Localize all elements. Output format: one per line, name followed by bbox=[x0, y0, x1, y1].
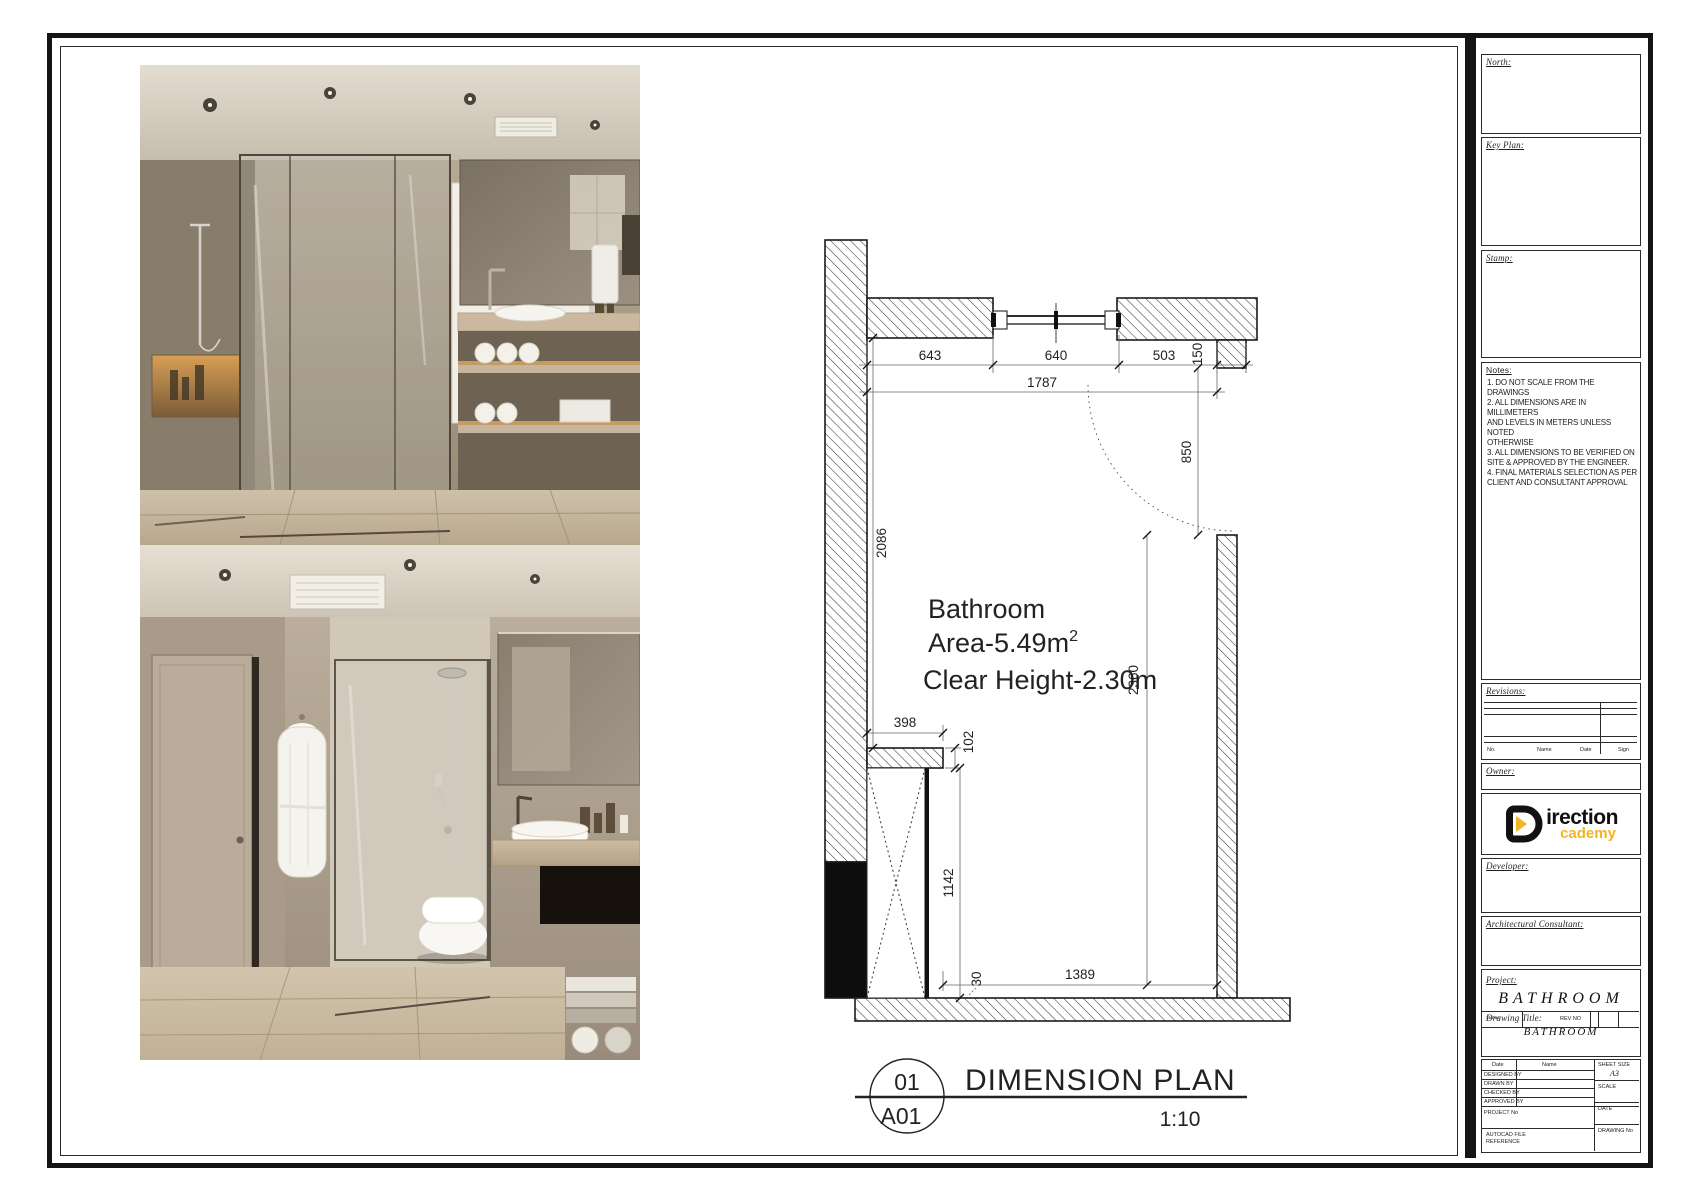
row-approved-by: APPROVED BY bbox=[1484, 1099, 1523, 1105]
shower-wall bbox=[140, 160, 255, 495]
photo-render-bottom bbox=[140, 545, 640, 1060]
titleblock-north: North: bbox=[1481, 54, 1641, 134]
notes-text: 1. DO NOT SCALE FROM THE DRAWINGS 2. ALL… bbox=[1482, 375, 1640, 488]
sheet-size-value: A3 bbox=[1610, 1069, 1619, 1078]
dim-150: 150 bbox=[1190, 343, 1205, 366]
note-line: AND LEVELS IN METERS UNLESS NOTED bbox=[1487, 418, 1638, 438]
keyplan-label: Key Plan: bbox=[1482, 138, 1640, 150]
photo1-ceiling bbox=[140, 65, 640, 160]
ceiling-vent-2 bbox=[290, 575, 385, 609]
dim-1787: 1787 bbox=[1027, 375, 1057, 390]
date-label: DATE bbox=[1598, 1106, 1612, 1112]
dimension-plan: 643 640 503 150 1787 850 2086 2360 398 1… bbox=[755, 215, 1300, 1135]
photo2-ceiling bbox=[140, 545, 640, 617]
dim-643: 643 bbox=[919, 348, 942, 363]
vanity-shelves bbox=[458, 331, 640, 491]
wall-frame bbox=[622, 215, 640, 275]
file-label-1: AUTOCAD FILE bbox=[1486, 1132, 1526, 1138]
hand-towel bbox=[592, 245, 618, 303]
note-line: 4. FINAL MATERIALS SELECTION AS PER bbox=[1487, 468, 1638, 478]
titleblock-owner: Owner: bbox=[1481, 763, 1641, 790]
callout-number: 01 bbox=[894, 1069, 920, 1095]
owner-label: Owner: bbox=[1482, 764, 1640, 776]
col-date: Date bbox=[1492, 1062, 1504, 1068]
window bbox=[991, 303, 1121, 343]
dim-30: 30 bbox=[969, 971, 984, 986]
revisions-label: Revisions: bbox=[1482, 684, 1640, 696]
note-line: CLIENT AND CONSULTANT APPROVAL bbox=[1487, 478, 1638, 488]
vanity-mirror-2 bbox=[498, 633, 640, 785]
rev-col-date: Date bbox=[1580, 747, 1592, 753]
row-drawn-by: DRAWN BY bbox=[1484, 1081, 1513, 1087]
row-designed-by: DESIGNED BY bbox=[1484, 1072, 1522, 1078]
callout-sheet: A01 bbox=[881, 1103, 922, 1129]
architect-label: Architectural Consultant: bbox=[1482, 917, 1640, 929]
note-line: 1. DO NOT SCALE FROM THE DRAWINGS bbox=[1487, 378, 1638, 398]
developer-label: Developer: bbox=[1482, 859, 1640, 871]
callout-scale: 1:10 bbox=[1160, 1108, 1201, 1131]
note-line: SITE & APPROVED BY THE ENGINEER. bbox=[1487, 458, 1638, 468]
drawing-no-label: DRAWING No bbox=[1598, 1128, 1633, 1134]
rev-col-sign: Sign bbox=[1618, 747, 1629, 753]
titleblock-architect: Architectural Consultant: bbox=[1481, 916, 1641, 966]
room-clear-height: Clear Height-2.30m bbox=[923, 665, 1157, 695]
photo2-floor bbox=[140, 967, 565, 1060]
shower-niche bbox=[152, 355, 240, 417]
titleblock-stamp: Stamp: bbox=[1481, 250, 1641, 358]
dim-2086: 2086 bbox=[874, 528, 889, 558]
titleblock-divider bbox=[1465, 38, 1476, 1158]
direction-academy-logo: irection cademy bbox=[1482, 794, 1640, 854]
project-label: Project: bbox=[1482, 973, 1517, 985]
rev-no-label: REV NO bbox=[1560, 1016, 1581, 1022]
scale-label: SCALE bbox=[1598, 1084, 1616, 1090]
note-line: 3. ALL DIMENSIONS TO BE VERIFIED ON bbox=[1487, 448, 1638, 458]
titleblock-logo: irection cademy bbox=[1481, 793, 1641, 855]
col-name: Name bbox=[1542, 1062, 1557, 1068]
photo-render-top bbox=[140, 65, 640, 545]
dim-640: 640 bbox=[1045, 348, 1068, 363]
dim-102: 102 bbox=[961, 731, 976, 754]
bathroom-door bbox=[152, 655, 259, 1002]
project-no-label: PROJECT No bbox=[1484, 1110, 1518, 1116]
titleblock-project: Project: BATHROOM Status: REV NO Drawing… bbox=[1481, 969, 1641, 1057]
row-checked-by: CHECKED BY bbox=[1484, 1090, 1520, 1096]
room-name: Bathroom bbox=[928, 594, 1045, 624]
file-label-2: REFERENCE bbox=[1486, 1139, 1520, 1145]
notes-label: Notes: bbox=[1482, 363, 1640, 375]
rev-col-no: No. bbox=[1487, 747, 1496, 753]
dim-398: 398 bbox=[894, 715, 917, 730]
shower-glass bbox=[240, 155, 450, 540]
titleblock-revisions: Revisions: No. Name Date Sign bbox=[1481, 683, 1641, 760]
dim-1142: 1142 bbox=[941, 868, 956, 897]
room-area: Area-5.49m2 bbox=[928, 628, 1078, 658]
logo-d-icon bbox=[1504, 804, 1544, 844]
north-label: North: bbox=[1482, 55, 1640, 67]
rev-col-name: Name bbox=[1537, 747, 1552, 753]
sheet-size-label: SHEET SIZE bbox=[1598, 1062, 1630, 1068]
photo1-floor bbox=[140, 490, 640, 545]
stamp-label: Stamp: bbox=[1482, 251, 1640, 263]
logo-text-yellow: cademy bbox=[1560, 826, 1618, 841]
note-line: 2. ALL DIMENSIONS ARE IN MILLIMETERS bbox=[1487, 398, 1638, 418]
floating-toilet bbox=[417, 897, 489, 964]
status-label: Status: bbox=[1486, 1015, 1501, 1021]
duct-shaft bbox=[867, 768, 929, 998]
dim-1389: 1389 bbox=[1065, 967, 1095, 982]
project-value: BATHROOM bbox=[1482, 990, 1640, 1008]
door-swing-arc bbox=[1088, 385, 1234, 531]
dim-503: 503 bbox=[1153, 348, 1176, 363]
dim-850: 850 bbox=[1179, 441, 1194, 464]
drawing-callout: 01 A01 DIMENSION PLAN 1:10 bbox=[855, 1059, 1247, 1133]
note-line: OTHERWISE bbox=[1487, 438, 1638, 448]
bathrobe bbox=[278, 714, 326, 877]
ceiling-vent bbox=[495, 117, 557, 137]
titleblock-developer: Developer: bbox=[1481, 858, 1641, 913]
titleblock-keyplan: Key Plan: bbox=[1481, 137, 1641, 246]
titleblock-notes: Notes: 1. DO NOT SCALE FROM THE DRAWINGS… bbox=[1481, 362, 1641, 680]
titleblock-info-table: Date Name SHEET SIZE A3 DESIGNED BY DRAW… bbox=[1481, 1059, 1641, 1153]
callout-title: DIMENSION PLAN bbox=[965, 1064, 1236, 1097]
drawing-sheet: 643 640 503 150 1787 850 2086 2360 398 1… bbox=[0, 0, 1699, 1200]
